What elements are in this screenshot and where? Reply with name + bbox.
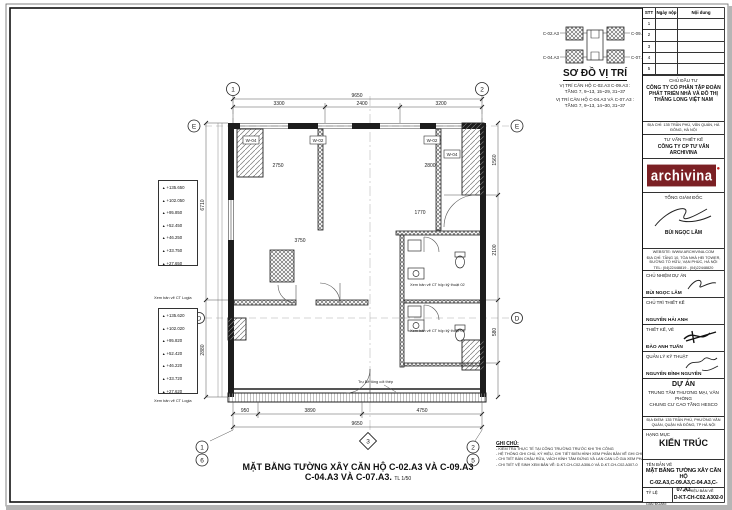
svg-text:2: 2: [480, 87, 484, 94]
role-project-manager: CHỦ NHIỆM DỰ ÁN BÙI NGỌC LÂM: [643, 271, 724, 298]
owner-name: CÔNG TY CỔ PHẦN TẬP ĐOÀN PHÁT TRIỂN NHÀ …: [643, 83, 724, 104]
rev-header-content: Nội dung: [678, 8, 724, 19]
svg-text:Xem bản vẽ CT hộp kỹ thuật 03: Xem bản vẽ CT hộp kỹ thuật 03: [410, 328, 465, 333]
level-mark-icon: ▲: [162, 211, 165, 215]
scale-code-section: TỶ LỆ KÝ HIỆU BẢN VẼ D-KT-CH-C02.A302-0: [643, 488, 724, 502]
svg-text:3300: 3300: [273, 101, 284, 107]
project-name-line2: CHUNG CƯ CAO TẦNG HESCO: [643, 402, 724, 408]
level-value: ▲+33.720: [159, 373, 197, 386]
rev-cell: [678, 53, 724, 64]
director-label: TỔNG GIÁM ĐỐC: [643, 193, 724, 200]
window-tags: W-04 W-02 W-02 W-04: [243, 136, 460, 158]
category-value: KIẾN TRÚC: [643, 437, 724, 446]
drawing-name-label: TÊN BẢN VẼ: [643, 460, 724, 467]
svg-text:2800: 2800: [424, 163, 435, 169]
category-section: HẠNG MỤC KIẾN TRÚC: [643, 430, 724, 460]
svg-text:9650: 9650: [351, 93, 362, 99]
key-plan-title: SƠ ĐỒ VỊ TRÍ: [545, 68, 645, 81]
svg-text:950: 950: [241, 408, 250, 414]
rev-cell: [656, 30, 678, 41]
level-mark-icon: ▲: [162, 186, 165, 190]
owner-section: CHỦ ĐẦU TƯ CÔNG TY CỔ PHẦN TẬP ĐOÀN PHÁT…: [643, 76, 724, 122]
level-mark-icon: ▲: [162, 262, 165, 266]
consultant-contact: WEBSITE: WWW.ARCHIVINA.COM ĐỊA CHỈ: TẦNG…: [643, 249, 724, 271]
scale-label: TỶ LỆ: [643, 488, 673, 502]
level-value: ▲+135.650: [159, 182, 197, 195]
svg-text:1: 1: [200, 445, 204, 452]
key-plan-note-line: TẦNG 7, 9~13, 15~29, 31~37: [538, 89, 652, 95]
main-title-line1: MẶT BẰNG TƯỜNG XÂY CĂN HỘ C-02.A3 VÀ C-0…: [228, 462, 488, 472]
category-label: HẠNG MỤC: [643, 430, 724, 437]
rev-row-num: 5: [643, 64, 656, 75]
rev-cell: [678, 42, 724, 53]
rev-cell: [656, 64, 678, 75]
level-mark-icon: ▲: [162, 249, 165, 253]
page-shadow-bottom: [6, 505, 732, 510]
level-mark-icon: ▲: [162, 390, 165, 394]
archivina-logo: archivina: [647, 165, 717, 187]
level-value: ▲+33.750: [159, 245, 197, 258]
consultant-name: CÔNG TY CP TƯ VẤN ARCHIVINA: [643, 142, 724, 156]
rev-cell: [656, 42, 678, 53]
project-location: ĐỊA ĐIỂM: 135 TRẦN PHÚ, PHƯỜNG VĂN QUÁN,…: [643, 417, 724, 430]
level-mark-icon: ▲: [162, 377, 165, 381]
svg-text:580: 580: [492, 328, 498, 337]
main-title-scale: TL 1/50: [394, 476, 411, 482]
elevation-caption-1: Xem bản vẽ CT Logia: [154, 295, 224, 300]
rev-row-num: 4: [643, 53, 656, 64]
project-section: DỰ ÁN TRUNG TÂM THƯƠNG MẠI, VĂN PHÒNG CH…: [643, 379, 724, 417]
rev-row-num: 1: [643, 19, 656, 30]
rev-row-num: 2: [643, 30, 656, 41]
code-value: D-KT-CH-C02.A302-0: [673, 495, 724, 501]
level-value: ▲+27.620: [159, 386, 197, 399]
owner-label: CHỦ ĐẦU TƯ: [643, 76, 724, 83]
level-mark-icon: ▲: [162, 364, 165, 368]
contact-address: ĐỊA CHỈ: TẦNG 10, TÒA NHÀ HEI TOWER, ĐƯỜ…: [643, 256, 724, 266]
svg-text:3890: 3890: [304, 408, 315, 414]
svg-text:D: D: [515, 316, 520, 323]
note-line: - CHI TIẾT BÀN CHẬU RỬA, VÁCH KÍNH TẮM Đ…: [496, 457, 646, 462]
level-value: ▲+135.620: [159, 310, 197, 323]
svg-text:2880: 2880: [200, 344, 206, 355]
role-signature: [680, 327, 720, 345]
svg-text:3750: 3750: [294, 238, 305, 244]
title-block: STT Ngày nộp Nội dung 1 2 3 4 5 CHỦ ĐẦU …: [642, 8, 724, 502]
svg-text:W-04: W-04: [246, 138, 257, 143]
key-plan-note-line: TẦNG 7, 9~13, 14~30, 31~37: [538, 103, 652, 109]
svg-text:1560: 1560: [492, 154, 498, 165]
drawing-name-section: TÊN BẢN VẼ MẶT BẰNG TƯỜNG XÂY CĂN HỘ C-0…: [643, 460, 724, 488]
general-notes: GHI CHÚ: - KIỂM TRA THỰC TẾ TẠI CÔNG TRƯ…: [496, 441, 646, 468]
level-value: ▲+95.850: [159, 207, 197, 220]
svg-text:W-02: W-02: [313, 138, 324, 143]
svg-text:9650: 9650: [351, 421, 362, 427]
director-section: TỔNG GIÁM ĐỐC BÙI NGỌC LÂM: [643, 193, 724, 249]
svg-text:4750: 4750: [416, 408, 427, 414]
level-value: ▲+102.050: [159, 195, 197, 208]
svg-text:2100: 2100: [492, 244, 498, 255]
left-ledge: [218, 123, 222, 397]
key-plan-diagram: C-02.A3 C-09.A3 C-04.A3 C-07.A3: [543, 27, 648, 63]
project-name-line1: TRUNG TÂM THƯƠNG MẠI, VĂN PHÒNG: [643, 388, 724, 402]
svg-text:W-04: W-04: [447, 152, 458, 157]
rev-cell: [678, 64, 724, 75]
contact-website: WEBSITE: WWW.ARCHIVINA.COM: [643, 249, 724, 256]
role-lead-designer: CHỦ TRÌ THIẾT KẾ NGUYỄN HẢI ANH: [643, 298, 724, 325]
revision-table: STT Ngày nộp Nội dung 1 2 3 4 5: [643, 8, 724, 76]
level-mark-icon: ▲: [162, 236, 165, 240]
consultant-logo-section: archivina●: [643, 159, 724, 193]
rev-cell: [656, 53, 678, 64]
rev-cell: [656, 19, 678, 30]
note-line: - CHI TIẾT VỆ SINH XEM BẢN VẼ: D-KT-CH-C…: [496, 463, 646, 468]
level-value: ▲+46.220: [159, 360, 197, 373]
role-designer: THIẾT KẾ, VẼ ĐÀO ANH TUẤN: [643, 325, 724, 352]
level-value: ▲+27.650: [159, 258, 197, 271]
level-value: ▲+52.450: [159, 220, 197, 233]
svg-text:C-04.A3: C-04.A3: [543, 55, 560, 60]
level-mark-icon: ▲: [162, 314, 165, 318]
rev-cell: [678, 30, 724, 41]
exterior-walls: [228, 123, 486, 402]
level-mark-icon: ▲: [162, 224, 165, 228]
director-name: BÙI NGỌC LÂM: [643, 230, 724, 236]
svg-text:E: E: [192, 124, 197, 131]
main-title-line2: C-04.A3 VÀ C-07.A3. TL 1/50: [228, 472, 488, 482]
elevation-box-1: ▲+135.650 ▲+102.050 ▲+95.850 ▲+52.450 ▲+…: [158, 180, 198, 266]
owner-address: ĐỊA CHỈ: 135 TRẦN PHÚ, VĂN QUÁN, HÀ ĐÔNG…: [643, 122, 724, 135]
level-value: ▲+46.250: [159, 232, 197, 245]
drawing-title-line1: MẶT BẰNG TƯỜNG XÂY CĂN HỘ: [643, 467, 724, 480]
project-label: DỰ ÁN: [643, 379, 724, 388]
svg-text:C-02.A3: C-02.A3: [543, 31, 560, 36]
svg-text:2750: 2750: [272, 163, 283, 169]
level-mark-icon: ▲: [162, 339, 165, 343]
elevation-caption-2: Xem bản vẽ CT Logia: [154, 398, 224, 403]
rev-cell: [678, 19, 724, 30]
level-value: ▲+52.420: [159, 348, 197, 361]
level-value: ▲+102.020: [159, 323, 197, 336]
drawing-sheet: 9650 3300 2400 3200 950 3890 4750 9650 6…: [0, 0, 732, 510]
level-mark-icon: ▲: [162, 327, 165, 331]
rev-header-date: Ngày nộp: [656, 8, 678, 19]
role-technical-manager: QUẢN LÝ KỸ THUẬT NGUYỄN ĐÌNH NGUYÊN: [643, 352, 724, 379]
elevation-box-2: ▲+135.620 ▲+102.020 ▲+95.820 ▲+52.420 ▲+…: [158, 308, 198, 394]
rev-row-num: 3: [643, 42, 656, 53]
svg-text:Xem bản vẽ CT hộp kỹ thuật 02: Xem bản vẽ CT hộp kỹ thuật 02: [410, 282, 465, 287]
role-signature: [686, 274, 720, 292]
bathroom-fixtures: [408, 240, 465, 341]
svg-text:1: 1: [231, 87, 235, 94]
drawing-main-title: MẶT BẰNG TƯỜNG XÂY CĂN HỘ C-02.A3 VÀ C-0…: [228, 462, 488, 482]
level-mark-icon: ▲: [162, 199, 165, 203]
svg-text:6710: 6710: [200, 199, 206, 210]
consultant-section: TƯ VẤN THIẾT KẾ CÔNG TY CP TƯ VẤN ARCHIV…: [643, 135, 724, 159]
svg-text:3: 3: [366, 439, 370, 446]
svg-text:E: E: [515, 124, 520, 131]
role-signature: [684, 354, 720, 372]
level-value: ▲+95.820: [159, 335, 197, 348]
level-mark-icon: ▲: [162, 352, 165, 356]
svg-text:1770: 1770: [414, 210, 425, 216]
logo-registered-dot: ●: [716, 166, 720, 172]
svg-text:2: 2: [471, 445, 475, 452]
plan-annotations: Xem bản vẽ CT hộp kỹ thuật 02 Xem bản vẽ…: [358, 282, 465, 392]
svg-text:6: 6: [200, 458, 204, 465]
consultant-label: TƯ VẤN THIẾT KẾ: [643, 135, 724, 142]
page-shadow-right: [728, 6, 732, 510]
director-signature: [651, 202, 717, 230]
svg-text:3200: 3200: [435, 101, 446, 107]
rev-header-stt: STT: [643, 8, 656, 19]
key-plan-notes: VỊ TRÍ CĂN HỘ C-02.A3 C-09.A3 : TẦNG 7, …: [538, 83, 652, 108]
svg-text:2400: 2400: [356, 101, 367, 107]
svg-text:Trụ Bê tông cốt thép: Trụ Bê tông cốt thép: [358, 379, 393, 384]
svg-text:W-02: W-02: [427, 138, 438, 143]
